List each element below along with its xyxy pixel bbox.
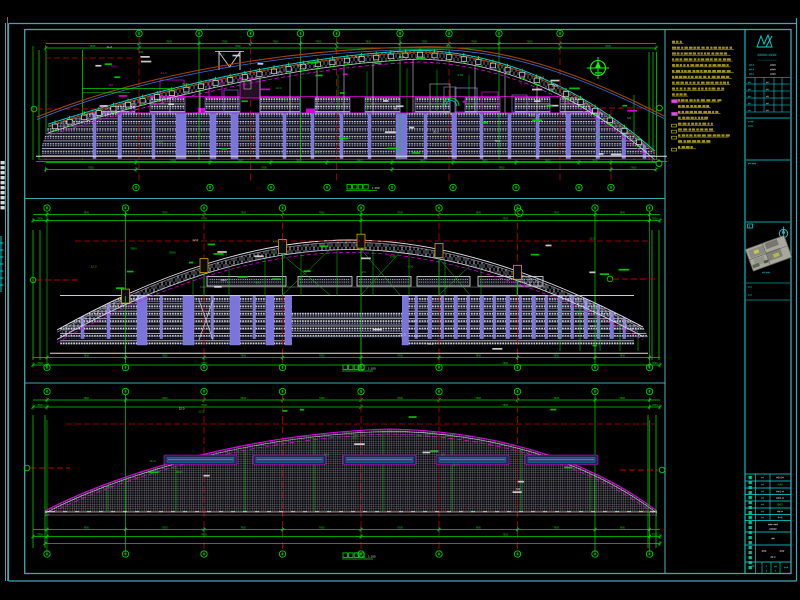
svg-text:7800: 7800 [37,216,43,220]
svg-text:JL-2: JL-2 [221,253,227,257]
svg-text:4.00: 4.00 [457,73,463,77]
svg-text:7800: 7800 [553,353,559,357]
svg-text:78.0: 78.0 [495,139,501,143]
svg-text:4.00: 4.00 [273,240,279,244]
svg-text:M2: M2 [627,116,631,120]
svg-text:12.0: 12.0 [219,53,225,57]
svg-text:JL-2: JL-2 [106,45,112,49]
svg-text:7800: 7800 [475,353,481,357]
svg-text:7800: 7800 [527,39,533,43]
svg-text:12.0: 12.0 [198,409,204,413]
svg-text:## ###: ## ### [762,271,770,275]
svg-text:B63: B63 [777,503,783,507]
svg-text:12.0: 12.0 [414,334,420,338]
svg-text:## #: ## # [770,555,776,559]
svg-text:12.0: 12.0 [411,319,417,323]
svg-text:7800: 7800 [319,210,325,214]
svg-text:M2: M2 [109,83,113,87]
svg-text:4=6: 4=6 [777,516,782,520]
svg-text:7800: 7800 [37,532,43,536]
svg-text:78.0: 78.0 [297,64,303,68]
svg-text:1:100: 1:100 [368,555,376,559]
svg-text:7800: 7800 [553,525,559,529]
svg-text:M2: M2 [516,487,520,491]
svg-text:7800: 7800 [475,525,481,529]
svg-text:4.00: 4.00 [408,265,414,269]
svg-text:3900: 3900 [130,246,137,250]
svg-text:7800: 7800 [619,525,625,529]
svg-text:7800: 7800 [652,532,658,536]
svg-text:7800: 7800 [261,165,267,169]
svg-text:7800: 7800 [619,210,625,214]
svg-text:7800: 7800 [162,525,168,529]
svg-text:#####: ##### [769,527,777,531]
svg-text:###: ### [784,566,789,570]
svg-text:78.0: 78.0 [323,453,329,457]
svg-text:4.00: 4.00 [577,310,583,314]
svg-text:M2: M2 [139,50,143,54]
svg-text:7800: 7800 [83,210,89,214]
svg-text:7800: 7800 [37,403,43,407]
svg-text:7800: 7800 [420,158,426,162]
svg-text:7800: 7800 [222,39,228,43]
svg-text:4.00: 4.00 [564,98,570,102]
svg-text:##1-#: ##1-# [776,489,784,493]
svg-text:4.00: 4.00 [276,70,282,74]
svg-text:7800: 7800 [553,210,559,214]
svg-text:7800: 7800 [319,525,325,529]
svg-text:M2: M2 [441,453,445,457]
svg-text:=== ======== ===: === ======== === [757,60,777,62]
svg-text:7800: 7800 [471,39,477,43]
svg-text:7800: 7800 [83,525,89,529]
svg-text:JL-2: JL-2 [150,459,156,463]
svg-text:7800: 7800 [619,396,625,400]
svg-text:7800: 7800 [162,396,168,400]
svg-text:7800: 7800 [83,396,89,400]
svg-text:7800: 7800 [545,158,551,162]
svg-text:JL-2: JL-2 [519,82,525,86]
svg-text:3900: 3900 [182,82,189,86]
svg-text:JL-2: JL-2 [428,342,434,346]
svg-text:7800: 7800 [319,353,325,357]
svg-text:12.0: 12.0 [179,406,185,410]
svg-text:7800: 7800 [397,353,403,357]
svg-text:78.0: 78.0 [352,436,358,440]
svg-text:12.0: 12.0 [91,265,97,269]
svg-text:7800: 7800 [397,396,403,400]
svg-text:M2: M2 [394,107,398,111]
svg-text:####: #### [770,63,776,67]
svg-text:7800: 7800 [240,210,246,214]
svg-text:JL-2: JL-2 [354,55,360,59]
svg-text:###: ### [762,549,767,553]
svg-text:3900: 3900 [390,255,397,259]
svg-text:JL-2: JL-2 [328,99,334,103]
svg-text:7800: 7800 [365,39,371,43]
svg-text:78.0: 78.0 [282,97,288,101]
svg-text:A46: A46 [777,483,783,487]
svg-text:12.0: 12.0 [360,270,366,274]
svg-text:7800: 7800 [162,353,168,357]
svg-text:7800: 7800 [162,210,168,214]
svg-text:7800: 7800 [240,353,246,357]
svg-text:JL-2: JL-2 [453,463,459,467]
svg-text:JL-2: JL-2 [221,65,227,69]
svg-text:12.0: 12.0 [161,71,167,75]
svg-text:## #: ## # [749,72,755,76]
svg-text:7800: 7800 [296,158,302,162]
svg-text:7800: 7800 [652,216,658,220]
svg-text:3900: 3900 [169,251,176,255]
svg-text:7800: 7800 [37,361,43,365]
svg-text:1:100: 1:100 [372,186,380,190]
svg-text:## #: ## # [777,509,783,513]
svg-text:7800: 7800 [652,403,658,407]
svg-text:####: #### [770,68,776,72]
svg-text:7800: 7800 [499,165,505,169]
svg-text:7800: 7800 [397,210,403,214]
svg-text:7800: 7800 [357,158,363,162]
svg-text:12.0: 12.0 [315,150,321,154]
svg-text:78.0: 78.0 [538,76,544,80]
svg-text:## #: ## # [749,68,755,72]
svg-text:7800: 7800 [166,39,172,43]
svg-text:1:100: 1:100 [368,367,376,371]
svg-text:###: ### [748,286,753,289]
svg-text:12.0: 12.0 [399,55,405,59]
svg-text:JL-2: JL-2 [433,130,439,134]
svg-text:7800: 7800 [475,210,481,214]
svg-text:M2: M2 [107,485,111,489]
svg-text:7800: 7800 [605,44,611,48]
svg-text:78.0: 78.0 [255,280,261,284]
svg-text:3900: 3900 [220,278,227,282]
svg-text:3900: 3900 [176,470,183,474]
svg-text:7800: 7800 [592,158,598,162]
svg-text:###: ### [748,294,753,297]
svg-text:12.0: 12.0 [276,86,282,90]
svg-text:7800: 7800 [631,165,637,169]
svg-text:### ###: ### ### [768,523,779,527]
svg-text:7800: 7800 [201,532,207,536]
svg-text:12.0: 12.0 [185,340,191,344]
svg-text:#####=####: #####=#### [758,53,777,57]
svg-text:7800: 7800 [316,39,322,43]
svg-text:7800: 7800 [319,396,325,400]
svg-text:# ##: # ## [748,120,754,124]
svg-text:12.0: 12.0 [192,238,198,242]
svg-text:###: ### [780,549,785,553]
svg-text:7800: 7800 [502,361,508,365]
svg-text:7800: 7800 [83,353,89,357]
svg-text:## #: ## # [749,63,755,67]
svg-text:7800: 7800 [482,158,488,162]
svg-text:12.0: 12.0 [589,236,595,240]
svg-text:7800: 7800 [235,44,241,48]
svg-text:JL-2: JL-2 [400,332,406,336]
svg-text:7800: 7800 [273,39,279,43]
svg-text:7800: 7800 [422,39,428,43]
svg-text:7800: 7800 [89,44,95,48]
svg-text:78.0: 78.0 [157,140,163,144]
svg-text:7800: 7800 [475,396,481,400]
svg-text:7800: 7800 [502,532,508,536]
svg-text:7800: 7800 [553,396,559,400]
svg-text:7800: 7800 [88,165,94,169]
svg-text:4.00: 4.00 [596,135,602,139]
svg-text:7800: 7800 [397,525,403,529]
svg-text:####: #### [748,125,754,128]
svg-text:#8.6#: #8.6# [776,476,784,480]
svg-text:3900: 3900 [552,84,559,88]
svg-text:7800: 7800 [240,396,246,400]
svg-text:2: 2 [749,225,751,229]
svg-text:## ###: ## ### [748,162,756,166]
svg-text:7800: 7800 [238,158,244,162]
svg-text:7800: 7800 [170,158,176,162]
svg-text:7800: 7800 [502,216,508,220]
svg-text:12.0: 12.0 [590,324,596,328]
svg-text:7800: 7800 [240,525,246,529]
svg-text:7800: 7800 [502,403,508,407]
svg-text:##4-#: ##4-# [776,496,784,500]
svg-text:##: ## [771,537,775,541]
svg-text:7800: 7800 [652,361,658,365]
svg-text:7800: 7800 [619,353,625,357]
svg-text:3900: 3900 [111,65,118,69]
svg-text:4.00: 4.00 [529,114,535,118]
svg-text:####: #### [770,72,776,76]
